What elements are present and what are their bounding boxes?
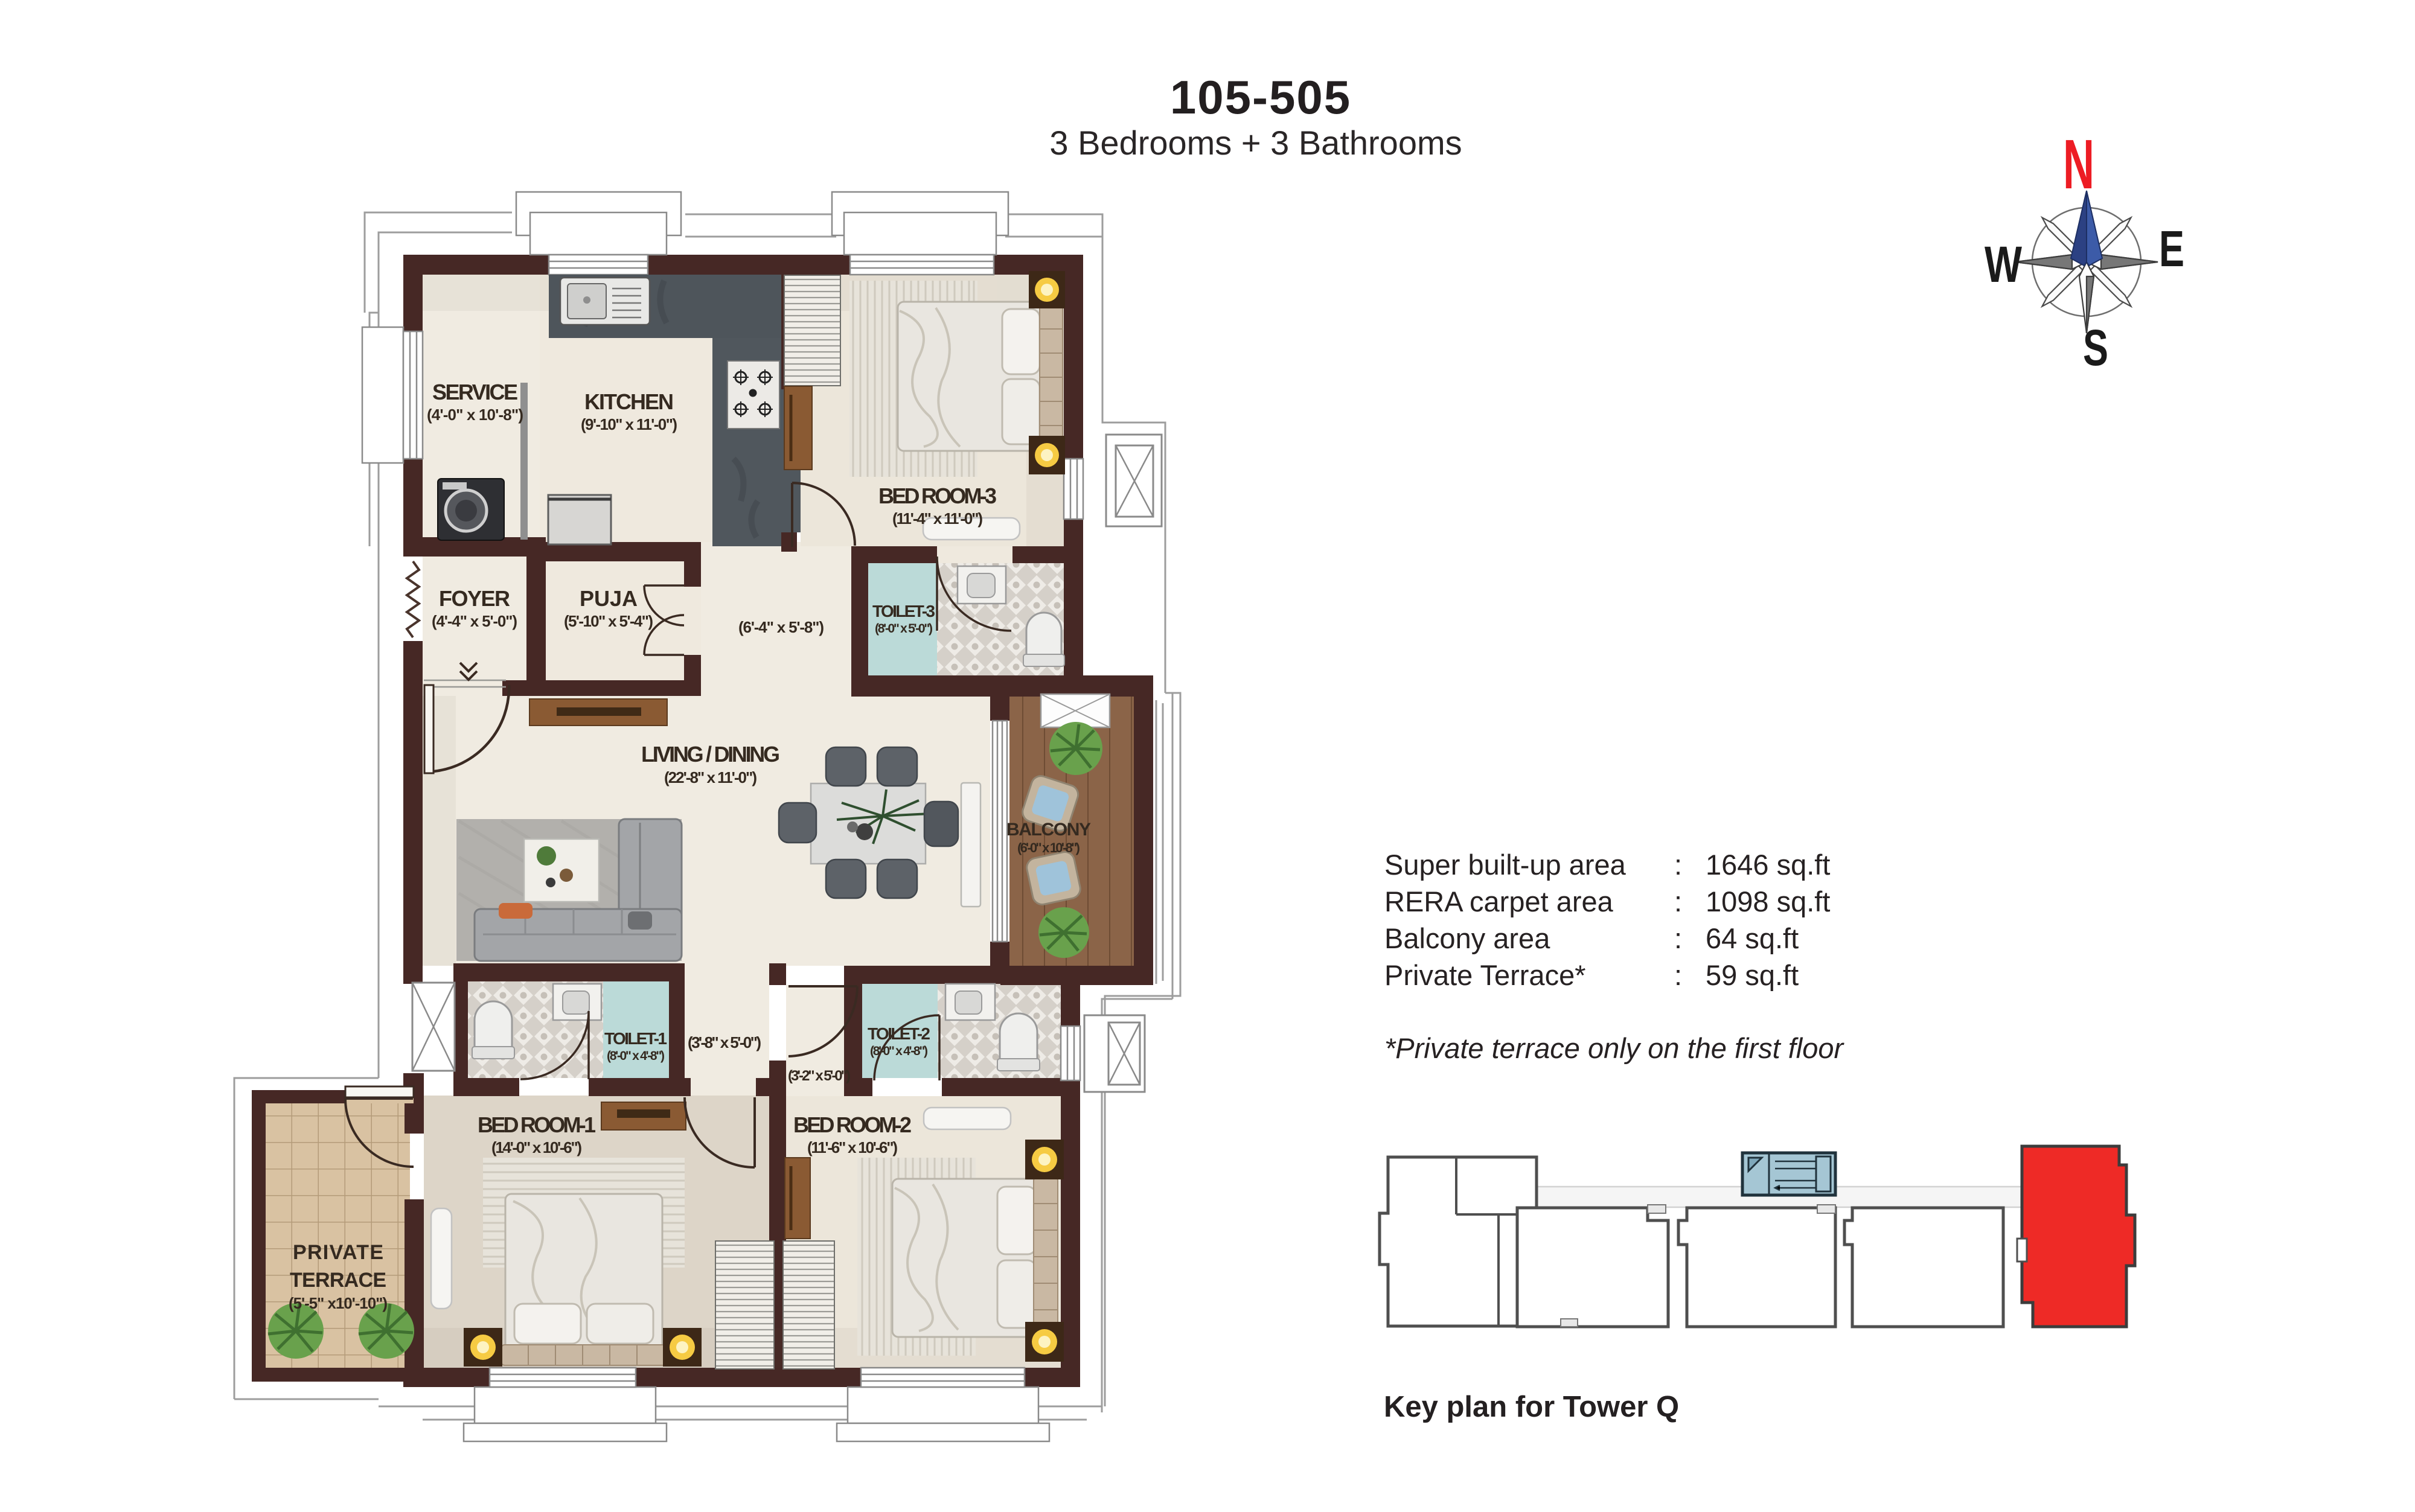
- svg-text:W: W: [1985, 236, 2023, 293]
- svg-text:PRIVATE: PRIVATE: [293, 1241, 383, 1264]
- svg-text:LIVING / DINING: LIVING / DINING: [641, 742, 780, 767]
- svg-text:(14'-0" x 10'-6"): (14'-0" x 10'-6"): [491, 1138, 582, 1156]
- svg-text:S: S: [2083, 319, 2108, 376]
- svg-text:Super built-up area: Super built-up area: [1384, 849, 1627, 881]
- svg-text:Key plan for Tower Q: Key plan for Tower Q: [1384, 1391, 1679, 1423]
- svg-text:N: N: [2063, 125, 2094, 203]
- svg-text:BED ROOM-2: BED ROOM-2: [793, 1112, 912, 1137]
- svg-text:TOILET-2: TOILET-2: [868, 1024, 930, 1043]
- svg-text:(5'-10" x 5'-4"): (5'-10" x 5'-4"): [564, 612, 653, 630]
- svg-text:64 sq.ft: 64 sq.ft: [1706, 922, 1799, 954]
- svg-text:(4'-0" x 10'-8"): (4'-0" x 10'-8"): [427, 406, 523, 424]
- svg-text:(11'-6" x 10'-6"): (11'-6" x 10'-6"): [807, 1138, 898, 1156]
- svg-text:BED ROOM-1: BED ROOM-1: [478, 1112, 596, 1137]
- svg-text::: :: [1674, 849, 1682, 881]
- svg-text:Private Terrace*: Private Terrace*: [1384, 959, 1586, 991]
- svg-text:TOILET-1: TOILET-1: [604, 1029, 667, 1048]
- svg-text:BALCONY: BALCONY: [1006, 820, 1091, 840]
- svg-text:SERVICE: SERVICE: [432, 380, 518, 404]
- svg-text:PUJA: PUJA: [580, 586, 638, 611]
- svg-text:TERRACE: TERRACE: [290, 1269, 386, 1292]
- svg-text:105-505: 105-505: [1170, 71, 1351, 124]
- svg-text:(6'-0" x 10'-8"): (6'-0" x 10'-8"): [1017, 840, 1080, 855]
- svg-text:(3'-8" x 5'-0"): (3'-8" x 5'-0"): [688, 1033, 761, 1051]
- svg-text:(8'-0" x 4'-8"): (8'-0" x 4'-8"): [607, 1049, 665, 1063]
- svg-text:1646 sq.ft: 1646 sq.ft: [1706, 849, 1830, 881]
- svg-text:KITCHEN: KITCHEN: [584, 389, 674, 414]
- svg-text:(9'-10" x 11'-0"): (9'-10" x 11'-0"): [581, 415, 677, 433]
- svg-text:FOYER: FOYER: [439, 586, 510, 611]
- svg-text:TOILET-3: TOILET-3: [872, 602, 935, 620]
- svg-text:*Private terrace only on the f: *Private terrace only on the first floor: [1384, 1032, 1845, 1064]
- svg-text:(8'-0" x 5'-0"): (8'-0" x 5'-0"): [875, 622, 933, 636]
- svg-text:(5'-5" x10'-10"): (5'-5" x10'-10"): [289, 1294, 388, 1312]
- svg-text:(8'-0" x 4'-8"): (8'-0" x 4'-8"): [870, 1044, 928, 1058]
- svg-text:1098 sq.ft: 1098 sq.ft: [1706, 885, 1830, 917]
- svg-text:(4'-4" x 5'-0"): (4'-4" x 5'-0"): [432, 612, 517, 630]
- svg-text:(3'-2" x 5'-0"): (3'-2" x 5'-0"): [788, 1068, 851, 1084]
- svg-text:(22'-8" x 11'-0"): (22'-8" x 11'-0"): [664, 768, 757, 786]
- svg-text:59 sq.ft: 59 sq.ft: [1706, 959, 1799, 991]
- svg-text::: :: [1674, 922, 1682, 954]
- svg-text:BED ROOM-3: BED ROOM-3: [878, 483, 997, 508]
- svg-text:3 Bedrooms + 3 Bathrooms: 3 Bedrooms + 3 Bathrooms: [1049, 124, 1462, 162]
- svg-text::: :: [1674, 959, 1682, 991]
- svg-text:(11'-4" x 11'-0"): (11'-4" x 11'-0"): [892, 509, 983, 528]
- svg-text:Balcony area: Balcony area: [1384, 922, 1550, 954]
- svg-text:RERA carpet area: RERA carpet area: [1384, 885, 1614, 917]
- svg-text:(6'-4" x 5'-8"): (6'-4" x 5'-8"): [738, 618, 824, 636]
- svg-text::: :: [1674, 885, 1682, 917]
- svg-text:E: E: [2159, 220, 2184, 277]
